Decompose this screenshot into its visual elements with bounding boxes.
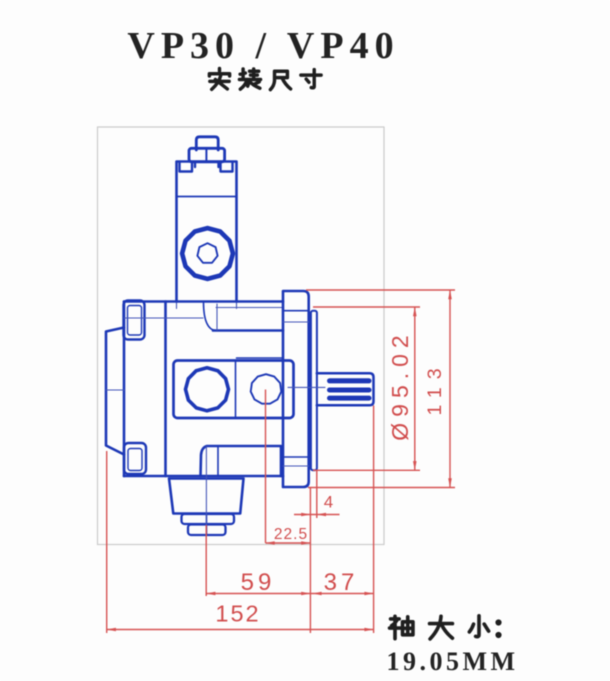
svg-text:37: 37 — [324, 569, 359, 596]
svg-text:152: 152 — [215, 601, 260, 627]
svg-text:22.5: 22.5 — [274, 526, 308, 543]
svg-text:59: 59 — [241, 569, 276, 596]
svg-text:19.05MM: 19.05MM — [387, 647, 519, 676]
svg-text:Ø95.02: Ø95.02 — [387, 329, 413, 440]
svg-text:113: 113 — [424, 360, 446, 415]
svg-text:4: 4 — [324, 493, 333, 512]
svg-text:VP30 / VP40: VP30 / VP40 — [127, 25, 399, 67]
